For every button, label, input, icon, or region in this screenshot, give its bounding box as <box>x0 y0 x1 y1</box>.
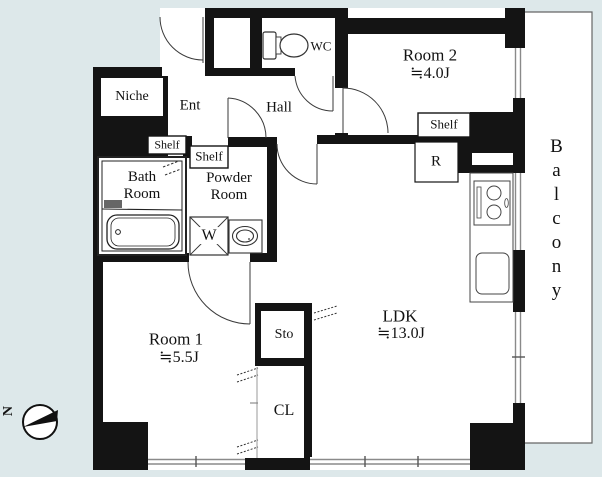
label-room2-name: Room 2 <box>403 45 457 64</box>
window-room1-south <box>148 456 245 469</box>
label-balcony: Balcony <box>543 136 567 306</box>
compass <box>23 405 58 439</box>
bathtub <box>107 215 179 249</box>
stove <box>474 181 510 225</box>
wash-basin <box>229 220 262 253</box>
window-room2-east <box>513 48 525 98</box>
bath-counter <box>104 200 122 208</box>
label-powder-room: Powder Room <box>206 170 252 204</box>
label-room1-name: Room 1 <box>149 329 203 348</box>
label-room1-size: ≒5.5J <box>159 349 199 367</box>
label-shelf-2: Shelf <box>195 150 222 165</box>
window-kitchen-east <box>513 173 525 250</box>
label-ldk-name: LDK <box>383 306 418 325</box>
window-ldk-south <box>310 456 470 469</box>
label-closet: CL <box>274 402 294 420</box>
label-room2-size: ≒4.0J <box>410 65 450 83</box>
label-shelf-3: Shelf <box>430 118 457 133</box>
kitchen <box>470 173 513 302</box>
window-ldk-east <box>512 312 525 403</box>
kitchen-sink <box>476 253 509 294</box>
label-ldk-size: ≒13.0J <box>377 325 425 343</box>
label-bath-room: Bath Room <box>124 169 161 203</box>
label-shelf-1: Shelf <box>154 138 179 151</box>
kitchen-pass-hatch <box>472 153 513 165</box>
floor-plan-canvas: Niche Ent Hall WC Room 2 ≒4.0J Shelf She… <box>0 0 602 477</box>
label-ent: Ent <box>180 98 201 115</box>
label-refrigerator: R <box>431 154 441 171</box>
label-north: N <box>1 406 17 416</box>
label-niche: Niche <box>115 89 148 105</box>
label-storage: Sto <box>275 327 294 343</box>
toilet <box>263 32 308 59</box>
label-hall: Hall <box>266 100 292 117</box>
label-wc: WC <box>311 40 332 55</box>
floor-plan-drawing <box>0 0 602 477</box>
label-washer: W <box>199 227 218 245</box>
